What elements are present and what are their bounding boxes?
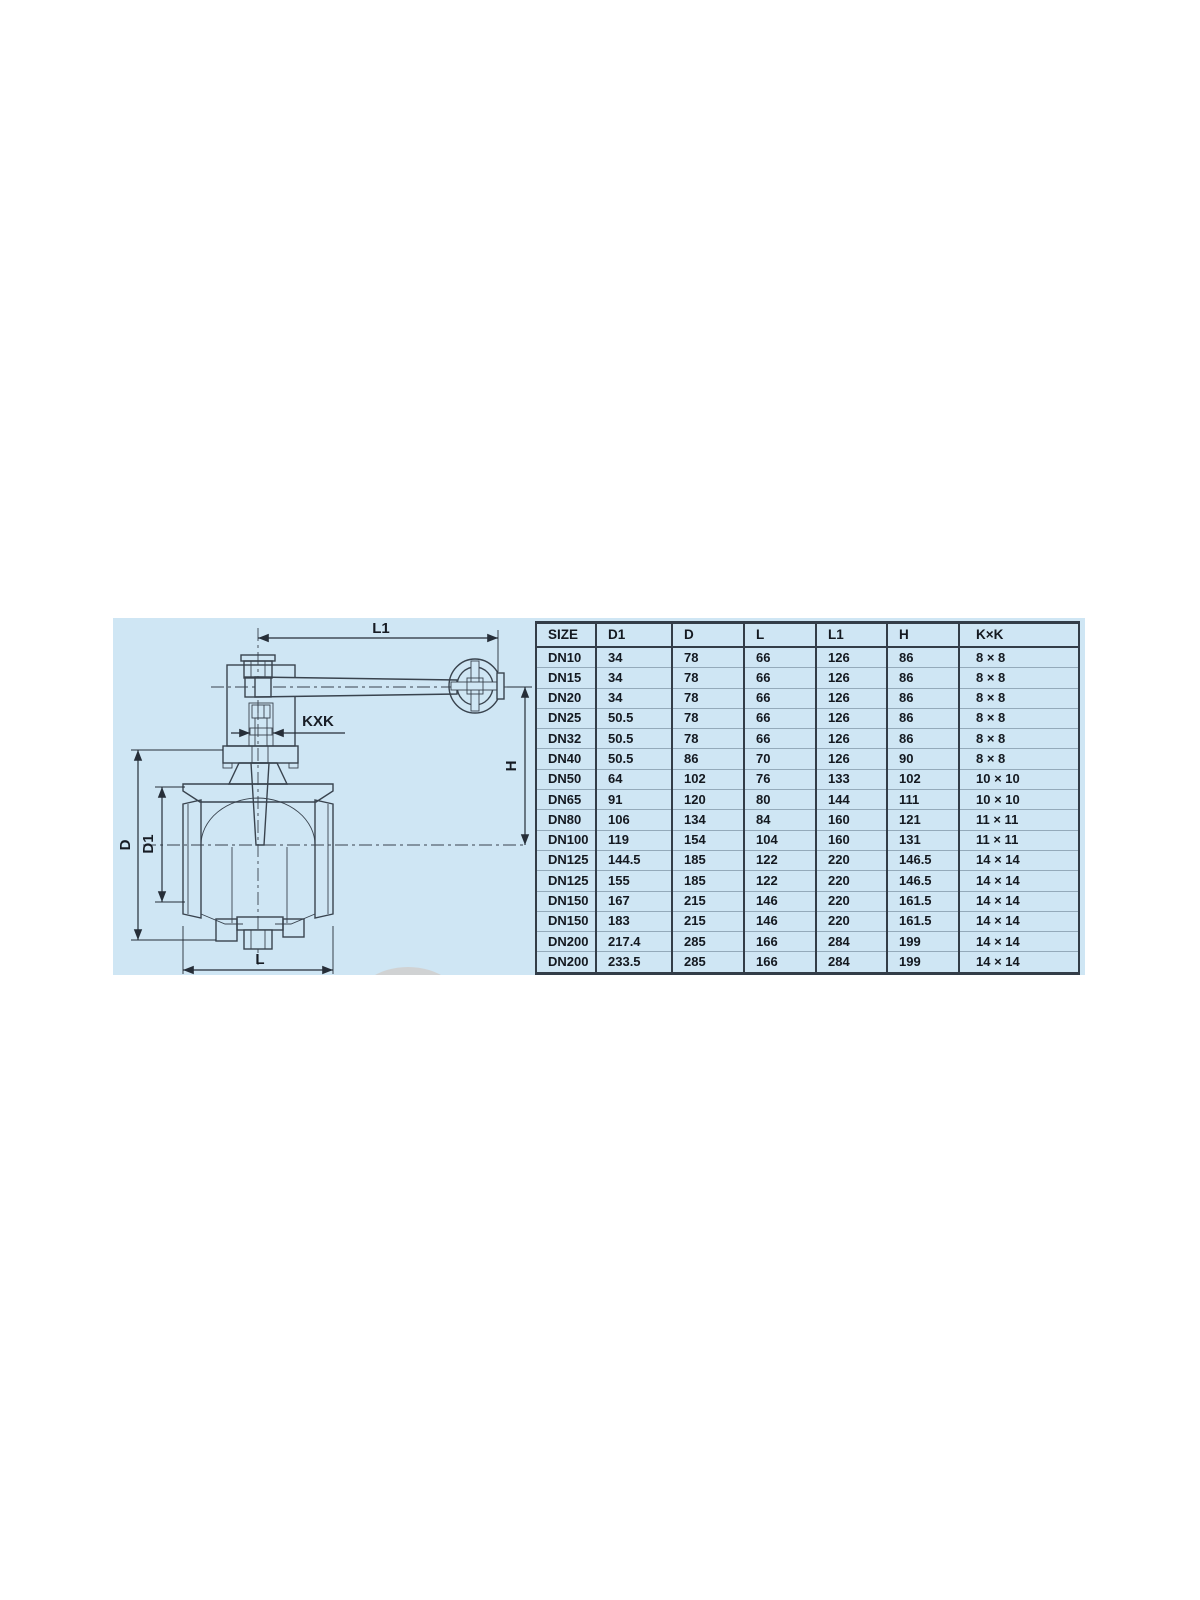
table-cell: 102 bbox=[887, 769, 959, 789]
table-cell: 146 bbox=[744, 891, 816, 911]
table-cell: 285 bbox=[672, 952, 744, 973]
dim-label-l: L bbox=[255, 951, 264, 968]
table-cell: 284 bbox=[816, 952, 887, 973]
table-cell: 76 bbox=[744, 769, 816, 789]
table-header: SIZE D1 D L L1 H K×K bbox=[536, 623, 1079, 648]
table-cell: 183 bbox=[596, 911, 672, 931]
table-cell: 8 × 8 bbox=[959, 708, 1079, 728]
table-cell: 215 bbox=[672, 911, 744, 931]
table-cell: 14 × 14 bbox=[959, 891, 1079, 911]
table-cell: 14 × 14 bbox=[959, 850, 1079, 870]
table-cell: 90 bbox=[887, 749, 959, 769]
table-cell: DN32 bbox=[536, 729, 596, 749]
table-cell: 86 bbox=[672, 749, 744, 769]
table-cell: 78 bbox=[672, 647, 744, 668]
dimension-table: SIZE D1 D L L1 H K×K DN10347866126868 × … bbox=[535, 621, 1080, 975]
table-cell: 120 bbox=[672, 790, 744, 810]
table-cell: 166 bbox=[744, 932, 816, 952]
table-cell: 86 bbox=[887, 647, 959, 668]
table-row: DN125144.5185122220146.514 × 14 bbox=[536, 850, 1079, 870]
table-cell: 126 bbox=[816, 688, 887, 708]
table-cell: 66 bbox=[744, 688, 816, 708]
table-cell: 91 bbox=[596, 790, 672, 810]
column-header-kxk: K×K bbox=[959, 623, 1079, 648]
table-cell: 134 bbox=[672, 810, 744, 830]
table-cell: 122 bbox=[744, 850, 816, 870]
table-cell: 106 bbox=[596, 810, 672, 830]
table-cell: 50.5 bbox=[596, 729, 672, 749]
table-cell: 146 bbox=[744, 911, 816, 931]
table-cell: 122 bbox=[744, 871, 816, 891]
table-cell: 8 × 8 bbox=[959, 668, 1079, 688]
column-header-h: H bbox=[887, 623, 959, 648]
table-cell: 233.5 bbox=[596, 952, 672, 973]
table-cell: DN40 bbox=[536, 749, 596, 769]
table-cell: 34 bbox=[596, 688, 672, 708]
table-cell: DN125 bbox=[536, 871, 596, 891]
dim-label-h: H bbox=[503, 761, 520, 772]
table-cell: 199 bbox=[887, 952, 959, 973]
dim-label-d: D bbox=[117, 839, 134, 850]
table-cell: 154 bbox=[672, 830, 744, 850]
column-header-l1: L1 bbox=[816, 623, 887, 648]
table-cell: 8 × 8 bbox=[959, 688, 1079, 708]
table-cell: 10 × 10 bbox=[959, 769, 1079, 789]
table-cell: 144 bbox=[816, 790, 887, 810]
table-cell: 185 bbox=[672, 850, 744, 870]
table-cell: 14 × 14 bbox=[959, 952, 1079, 973]
table-row: DN50641027613310210 × 10 bbox=[536, 769, 1079, 789]
table-cell: 78 bbox=[672, 688, 744, 708]
table-cell: DN200 bbox=[536, 932, 596, 952]
table-cell: 78 bbox=[672, 708, 744, 728]
table-cell: 155 bbox=[596, 871, 672, 891]
table-cell: DN25 bbox=[536, 708, 596, 728]
table-cell: 167 bbox=[596, 891, 672, 911]
bottom-nut-assembly bbox=[216, 917, 304, 949]
table-cell: 84 bbox=[744, 810, 816, 830]
table-cell: 8 × 8 bbox=[959, 729, 1079, 749]
table-cell: 144.5 bbox=[596, 850, 672, 870]
table-cell: 70 bbox=[744, 749, 816, 769]
table-cell: 34 bbox=[596, 647, 672, 668]
table-cell: 66 bbox=[744, 668, 816, 688]
table-cell: 126 bbox=[816, 729, 887, 749]
table-cell: 111 bbox=[887, 790, 959, 810]
table-cell: 121 bbox=[887, 810, 959, 830]
table-body: DN10347866126868 × 8DN15347866126868 × 8… bbox=[536, 647, 1079, 973]
valve-handle bbox=[241, 655, 504, 713]
table-cell: DN100 bbox=[536, 830, 596, 850]
table-cell: 215 bbox=[672, 891, 744, 911]
table-cell: 86 bbox=[887, 708, 959, 728]
table-cell: 34 bbox=[596, 668, 672, 688]
table-cell: 102 bbox=[672, 769, 744, 789]
table-row: DN65911208014411110 × 10 bbox=[536, 790, 1079, 810]
column-header-d1: D1 bbox=[596, 623, 672, 648]
table-row: DN3250.57866126868 × 8 bbox=[536, 729, 1079, 749]
table-cell: 86 bbox=[887, 729, 959, 749]
table-cell: 131 bbox=[887, 830, 959, 850]
table-row: DN801061348416012111 × 11 bbox=[536, 810, 1079, 830]
table-cell: 8 × 8 bbox=[959, 749, 1079, 769]
table-cell: 133 bbox=[816, 769, 887, 789]
column-header-size: SIZE bbox=[536, 623, 596, 648]
table-cell: 11 × 11 bbox=[959, 830, 1079, 850]
table-cell: 284 bbox=[816, 932, 887, 952]
table-cell: 217.4 bbox=[596, 932, 672, 952]
table-cell: 285 bbox=[672, 932, 744, 952]
table-cell: 14 × 14 bbox=[959, 932, 1079, 952]
table-row: DN20347866126868 × 8 bbox=[536, 688, 1079, 708]
table-cell: DN20 bbox=[536, 688, 596, 708]
table-cell: 104 bbox=[744, 830, 816, 850]
table-cell: DN80 bbox=[536, 810, 596, 830]
table-row: DN150167215146220161.514 × 14 bbox=[536, 891, 1079, 911]
table-row: DN10011915410416013111 × 11 bbox=[536, 830, 1079, 850]
table-cell: 126 bbox=[816, 749, 887, 769]
dim-label-d1: D1 bbox=[140, 834, 157, 853]
table-cell: 50.5 bbox=[596, 749, 672, 769]
table-row: DN15347866126868 × 8 bbox=[536, 668, 1079, 688]
datasheet-panel: L1 KXK H D D1 bbox=[113, 618, 1085, 975]
table-row: DN200233.528516628419914 × 14 bbox=[536, 952, 1079, 973]
table-cell: 86 bbox=[887, 688, 959, 708]
table-cell: 220 bbox=[816, 891, 887, 911]
valve-drawing: L1 KXK H D D1 bbox=[113, 618, 533, 975]
table-cell: 185 bbox=[672, 871, 744, 891]
page: L1 KXK H D D1 bbox=[0, 0, 1200, 1600]
table-cell: 160 bbox=[816, 810, 887, 830]
table-cell: DN65 bbox=[536, 790, 596, 810]
table-cell: DN15 bbox=[536, 668, 596, 688]
table-cell: DN10 bbox=[536, 647, 596, 668]
table-cell: 126 bbox=[816, 647, 887, 668]
table-cell: 66 bbox=[744, 647, 816, 668]
table-row: DN125155185122220146.514 × 14 bbox=[536, 871, 1079, 891]
table-cell: 50.5 bbox=[596, 708, 672, 728]
table-cell: 119 bbox=[596, 830, 672, 850]
table-cell: 161.5 bbox=[887, 891, 959, 911]
dim-label-kxk: KXK bbox=[302, 713, 334, 730]
table-cell: DN50 bbox=[536, 769, 596, 789]
table-row: DN200217.428516628419914 × 14 bbox=[536, 932, 1079, 952]
table-cell: 199 bbox=[887, 932, 959, 952]
table-cell: DN150 bbox=[536, 891, 596, 911]
table-row: DN150183215146220161.514 × 14 bbox=[536, 911, 1079, 931]
table-cell: 126 bbox=[816, 708, 887, 728]
dim-label-l1: L1 bbox=[372, 620, 390, 637]
table-header-row: SIZE D1 D L L1 H K×K bbox=[536, 623, 1079, 648]
table-cell: 14 × 14 bbox=[959, 911, 1079, 931]
table-cell: 146.5 bbox=[887, 871, 959, 891]
table-cell: 166 bbox=[744, 952, 816, 973]
table-cell: 80 bbox=[744, 790, 816, 810]
table-cell: 146.5 bbox=[887, 850, 959, 870]
table-cell: 14 × 14 bbox=[959, 871, 1079, 891]
table-cell: DN125 bbox=[536, 850, 596, 870]
table-cell: 220 bbox=[816, 850, 887, 870]
table-cell: 78 bbox=[672, 729, 744, 749]
table-cell: 78 bbox=[672, 668, 744, 688]
table-row: DN10347866126868 × 8 bbox=[536, 647, 1079, 668]
table-cell: 8 × 8 bbox=[959, 647, 1079, 668]
column-header-l: L bbox=[744, 623, 816, 648]
table-cell: 86 bbox=[887, 668, 959, 688]
table-cell: 66 bbox=[744, 729, 816, 749]
table-row: DN2550.57866126868 × 8 bbox=[536, 708, 1079, 728]
table-row: DN4050.58670126908 × 8 bbox=[536, 749, 1079, 769]
table-cell: 160 bbox=[816, 830, 887, 850]
table-cell: 64 bbox=[596, 769, 672, 789]
table-cell: DN200 bbox=[536, 952, 596, 973]
table-cell: 126 bbox=[816, 668, 887, 688]
table-cell: 161.5 bbox=[887, 911, 959, 931]
table-cell: 11 × 11 bbox=[959, 810, 1079, 830]
table-cell: 66 bbox=[744, 708, 816, 728]
table-cell: 220 bbox=[816, 911, 887, 931]
table-cell: 10 × 10 bbox=[959, 790, 1079, 810]
table-cell: DN150 bbox=[536, 911, 596, 931]
table-cell: 220 bbox=[816, 871, 887, 891]
column-header-d: D bbox=[672, 623, 744, 648]
